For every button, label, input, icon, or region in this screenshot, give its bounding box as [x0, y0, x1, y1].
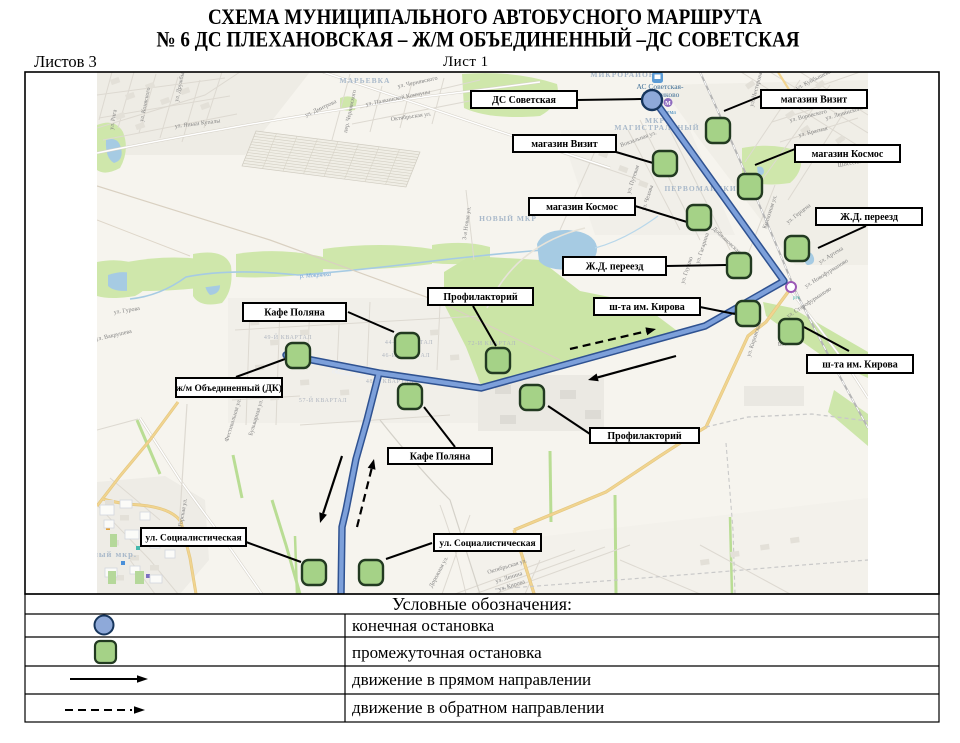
svg-text:Листов 3: Листов 3: [34, 52, 97, 71]
svg-text:МАГИСТРАЛЬНЫЙ: МАГИСТРАЛЬНЫЙ: [614, 123, 699, 132]
svg-text:57-Й КВАРТАЛ: 57-Й КВАРТАЛ: [299, 396, 347, 404]
svg-text:Ж.Д. переезд: Ж.Д. переезд: [840, 212, 898, 223]
svg-text:Профилакторий: Профилакторий: [443, 292, 517, 303]
svg-text:конечная остановка: конечная остановка: [352, 616, 495, 635]
svg-text:ртк: ртк: [793, 296, 801, 301]
svg-text:Профилакторий: Профилакторий: [607, 431, 681, 442]
svg-text:промежуточная остановка: промежуточная остановка: [352, 643, 542, 662]
svg-text:Лист 1: Лист 1: [443, 54, 489, 70]
svg-text:СХЕМА МУНИЦИПАЛЬНОГО АВТОБУСНО: СХЕМА МУНИЦИПАЛЬНОГО АВТОБУСНОГО МАРШРУТ…: [208, 4, 762, 29]
svg-text:№ 6 ДС ПЛЕХАНОВСКАЯ – Ж/М ОБЪЕ: № 6 ДС ПЛЕХАНОВСКАЯ – Ж/М ОБЪЕДИНЕННЫЙ –…: [157, 27, 800, 52]
svg-text:магазин Визит: магазин Визит: [781, 95, 848, 106]
svg-text:ул. Социалистическая: ул. Социалистическая: [439, 539, 535, 549]
svg-text:магазин Космос: магазин Космос: [812, 149, 884, 160]
svg-text:ж/м Объединенный (ДК): ж/м Объединенный (ДК): [176, 383, 282, 394]
svg-text:ш-та им. Кирова: ш-та им. Кирова: [822, 360, 898, 371]
svg-text:магазин Космос: магазин Космос: [546, 202, 618, 213]
svg-text:магазин Визит: магазин Визит: [531, 139, 598, 150]
svg-text:М: М: [665, 101, 671, 107]
svg-text:ный мкр.: ный мкр.: [93, 549, 137, 559]
svg-text:ш-та им. Кирова: ш-та им. Кирова: [609, 302, 685, 313]
svg-text:Кафе Поляна: Кафе Поляна: [410, 452, 470, 463]
svg-text:ДС Советская: ДС Советская: [492, 95, 556, 106]
svg-text:ПЕРВОМАЙСКИЙ: ПЕРВОМАЙСКИЙ: [664, 184, 743, 193]
svg-text:49-Й КВАРТАЛ: 49-Й КВАРТАЛ: [264, 333, 312, 341]
svg-text:МАРЬЕВКА: МАРЬЕВКА: [340, 76, 391, 85]
svg-text:Кафе Поляна: Кафе Поляна: [264, 308, 324, 319]
svg-text:движение в обратном направлени: движение в обратном направлении: [352, 698, 604, 717]
svg-text:ул. Социалистическая: ул. Социалистическая: [145, 534, 241, 544]
svg-text:Ж.Д. переезд: Ж.Д. переезд: [586, 262, 644, 273]
svg-text:72-И КВАРТАЛ: 72-И КВАРТАЛ: [468, 341, 516, 347]
svg-text:движение в прямом направлении: движение в прямом направлении: [352, 670, 591, 689]
svg-text:Условные обозначения:: Условные обозначения:: [392, 594, 572, 614]
